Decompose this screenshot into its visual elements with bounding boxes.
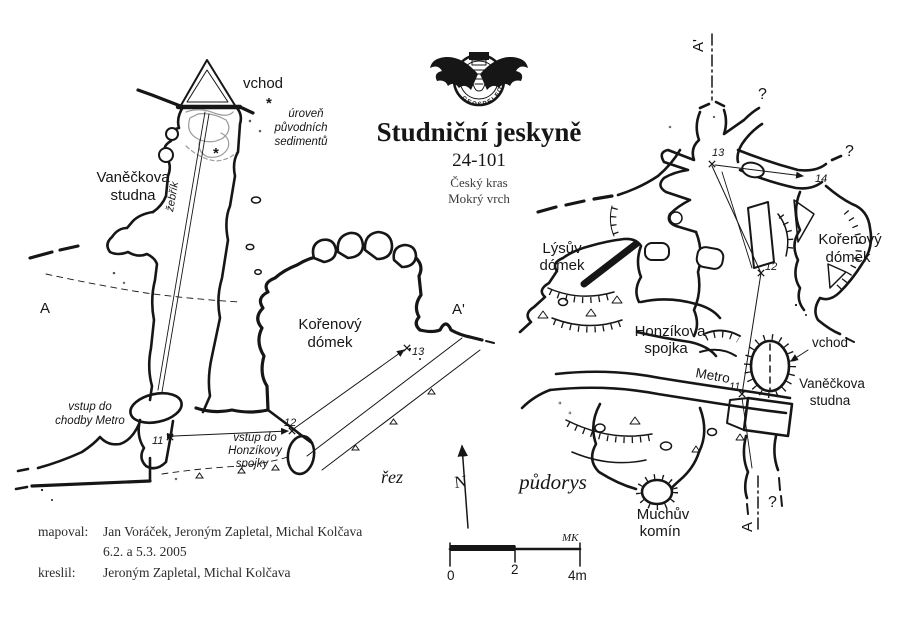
section-point-a-prime: A' [452, 301, 465, 318]
plan-well-label-2: studna [810, 393, 851, 408]
drawn-by-names: Jeroným Zapletal, Michal Kolčava [103, 565, 290, 580]
section-view-label: řez [381, 467, 403, 487]
plan-question-top: ? [758, 86, 767, 103]
scale-tick-4m: 4m [568, 568, 587, 583]
spojka-entry-label-3: spojky [236, 458, 270, 470]
section-station-13: 13 [412, 346, 425, 358]
plan-well-label-1: Vaněčkova [799, 376, 865, 391]
note-star: * [266, 95, 272, 112]
spojka-entry-label-2: Honzíkovy [228, 445, 283, 457]
geospeleos-logo: GEOSPELEOS [430, 52, 528, 108]
cave-number: 24-101 [452, 150, 506, 171]
section-station-11: 11 [152, 435, 163, 447]
plan-question-bottom: ? [768, 494, 777, 511]
plan-point-a: A [739, 522, 756, 532]
plan-metro-label: Metro [694, 365, 731, 386]
plan-spojka-label-1: Honzíkova [635, 323, 707, 340]
plan-view-drawing: A' ? ? 13 14 12 11 [517, 34, 882, 540]
section-point-a: A [40, 300, 50, 317]
spojka-entry-label-1: vstup do [233, 432, 277, 444]
cave-map-sheet: GEOSPELEOS Studniční jeskyně 24-101 Česk… [0, 0, 900, 640]
mapped-by-label: mapoval: [38, 524, 88, 539]
section-well-label-2: studna [110, 187, 156, 204]
locality-label: Mokrý vrch [448, 191, 510, 206]
scale-initials: MK [561, 532, 579, 544]
plan-station-14: 14 [815, 173, 827, 185]
section-dome-label-1: Kořenový [298, 316, 362, 333]
map-title: Studniční jeskyně [377, 117, 582, 147]
plan-chimney-label-2: komín [640, 523, 681, 540]
plan-spojka-label-2: spojka [644, 340, 688, 357]
region-label: Český kras [450, 175, 507, 190]
scale-tick-2: 2 [511, 562, 519, 577]
plan-point-a-prime: A' [690, 39, 707, 52]
plan-korenovy-label-2: dómek [825, 249, 871, 266]
plan-korenovy-label-1: Kořenový [818, 231, 882, 248]
scale-bar: 0 2 4m MK [447, 532, 587, 583]
metro-entry-label-2: chodby Metro [55, 415, 125, 427]
plan-entrance-label: vchod [812, 335, 848, 350]
scale-tick-0: 0 [447, 568, 455, 583]
section-dome-label-2: dómek [307, 334, 353, 351]
north-label: N [453, 472, 467, 492]
plan-question-right: ? [845, 143, 854, 160]
plan-view-label: půdorys [517, 470, 587, 494]
plan-lysuv-label-1: Lýsův [542, 240, 582, 257]
note-line2: původních [273, 122, 327, 134]
section-entrance-label: vchod [243, 75, 283, 92]
metro-entry-label-1: vstup do [68, 401, 112, 413]
credits-block: mapoval: Jan Voráček, Jeroným Zapletal, … [38, 524, 362, 580]
cave-map-svg: GEOSPELEOS Studniční jeskyně 24-101 Česk… [0, 0, 900, 640]
drawn-by-label: kreslil: [38, 565, 76, 580]
sediment-star-mark: * [213, 145, 219, 162]
note-line3: sedimentů [274, 136, 328, 148]
section-well-label-1: Vaněčkova [96, 169, 170, 186]
plan-chimney-label-1: Muchův [637, 506, 690, 523]
mapped-date: 6.2. a 5.3. 2005 [103, 544, 187, 559]
section-station-12: 12 [284, 417, 296, 429]
note-line1: úroveň [288, 108, 323, 120]
north-arrow: N [453, 446, 468, 528]
mapped-by-names: Jan Voráček, Jeroným Zapletal, Michal Ko… [103, 524, 362, 539]
